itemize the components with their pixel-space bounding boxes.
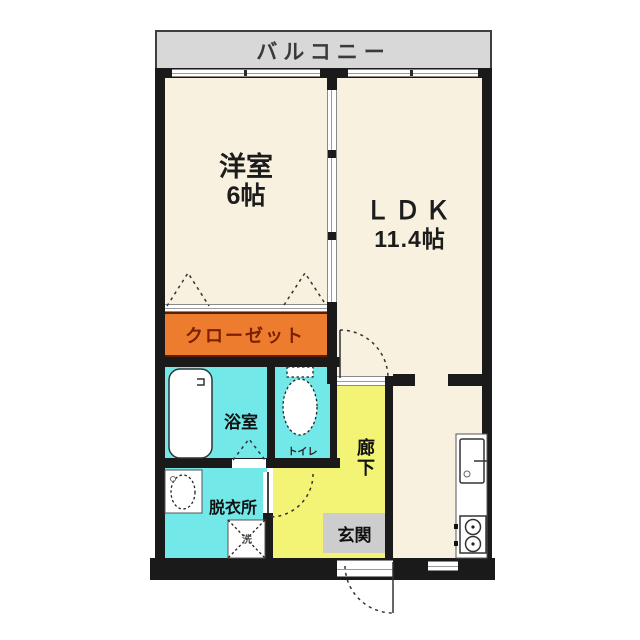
western-room-label: 洋室 6帖	[165, 152, 327, 210]
ldk-door-threshold	[337, 376, 385, 386]
bottom-wall-vent	[428, 561, 458, 571]
wall-dressing-corridor	[263, 513, 273, 558]
dressing-room-label: 脱衣所	[193, 494, 273, 518]
closet-label: クローゼット	[185, 322, 305, 348]
corridor-label: 廊下	[352, 438, 378, 502]
wall-left	[155, 68, 165, 560]
toilet-label: トイレ	[275, 443, 330, 458]
wall-right	[482, 68, 492, 560]
wall-partition-top	[327, 78, 337, 90]
sliding-door-partition	[327, 90, 337, 302]
balcony-area: バルコニー	[155, 30, 492, 72]
entrance-door-opening	[337, 560, 393, 577]
laundry-pan-label: 洗	[239, 531, 255, 546]
bathroom-door-gap	[232, 459, 266, 468]
bathroom-label: 浴室	[212, 408, 270, 433]
wall-toilet-corridor	[330, 357, 337, 468]
entrance-area: 玄関	[323, 513, 386, 553]
closet-door-track	[165, 304, 327, 312]
wall-corridor-right	[385, 376, 393, 558]
ldk-label: ＬＤＫ 11.4帖	[337, 198, 483, 253]
wall-kitchen-stub-right	[448, 374, 482, 386]
wall-under-closet	[155, 357, 340, 367]
window-ldk	[348, 69, 478, 77]
window-western-room	[172, 69, 320, 77]
floor-plan: バルコニー クローゼット 玄関	[0, 0, 640, 640]
balcony-label: バルコニー	[256, 36, 391, 66]
wall-kitchen-stub-left	[393, 374, 415, 386]
closet-area: クローゼット	[160, 312, 330, 357]
entrance-label: 玄関	[338, 521, 372, 546]
